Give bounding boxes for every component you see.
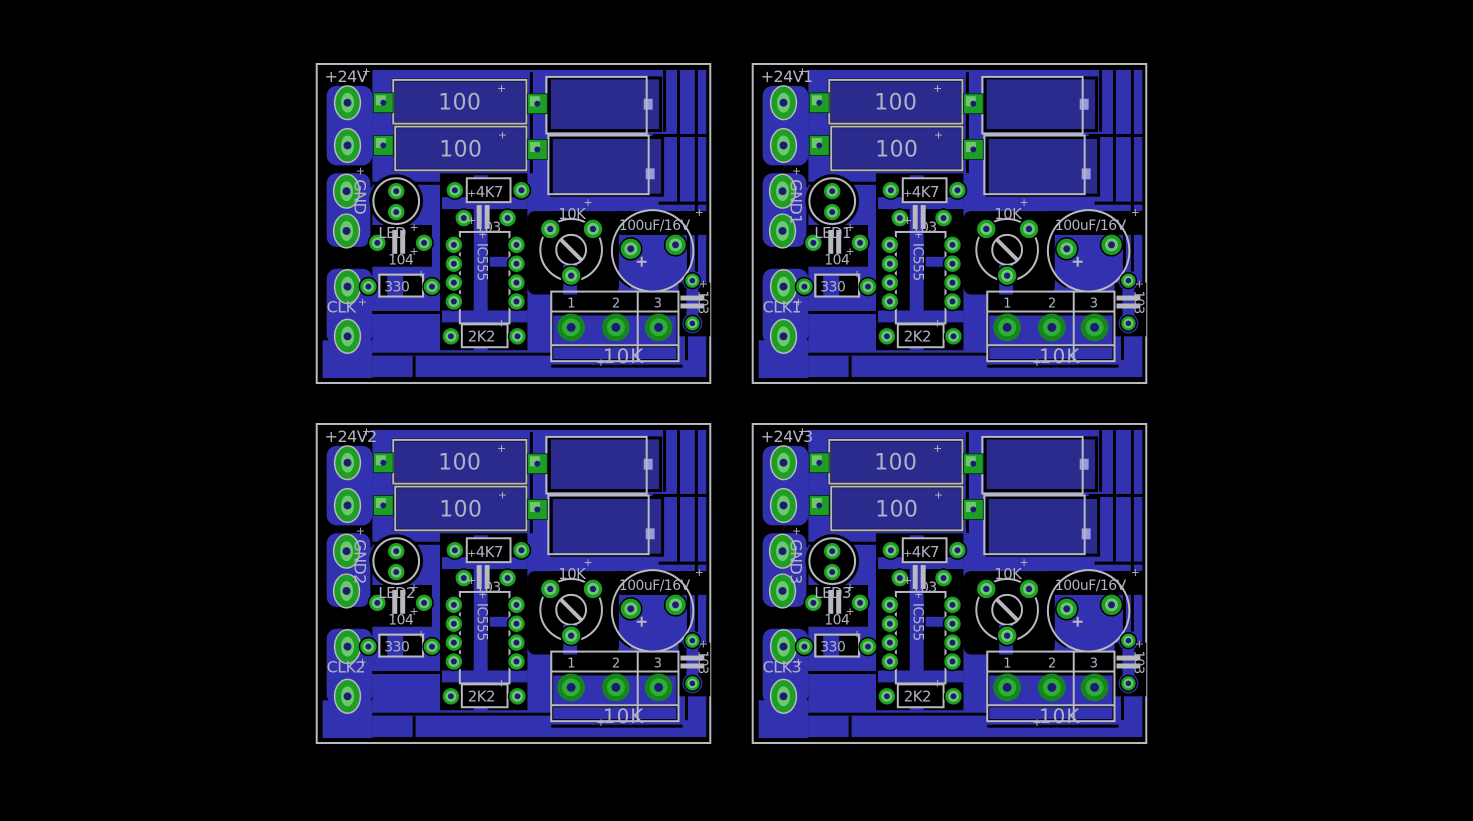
value-cap-electrolytic: 100uF/16V xyxy=(1055,218,1127,234)
pcb-board-3[interactable]: +24V2 GND2 LED2 CLK2 100 100 4K7 103 104… xyxy=(314,422,713,745)
pot-pin-3: 3 xyxy=(1090,296,1098,311)
pot-pin-3: 3 xyxy=(654,656,662,671)
origin-cross-icon: + xyxy=(903,574,912,587)
pad xyxy=(881,634,899,652)
pad xyxy=(373,136,393,156)
origin-cross-icon: + xyxy=(695,566,704,579)
pad xyxy=(945,327,963,345)
value-cap-103-edge: 103 xyxy=(1130,291,1145,314)
pad xyxy=(445,615,463,633)
pot-pin-1: 1 xyxy=(567,656,575,671)
label-gnd: GND xyxy=(350,179,369,214)
pad xyxy=(684,315,700,331)
pad xyxy=(993,673,1021,701)
via-mark xyxy=(1080,99,1089,110)
pad xyxy=(963,500,983,520)
pot-pin-2: 2 xyxy=(1048,656,1056,671)
origin-cross-icon: + xyxy=(362,65,371,78)
pad xyxy=(882,541,900,559)
pad xyxy=(944,653,962,671)
pad xyxy=(809,136,829,156)
pad xyxy=(1056,598,1078,620)
value-resistor-100-top: 100 xyxy=(438,451,481,476)
relay-bottom-body xyxy=(987,138,1098,196)
pad xyxy=(881,255,899,273)
origin-cross-icon: + xyxy=(467,574,476,587)
pad xyxy=(859,638,877,656)
relay-bottom-body xyxy=(551,138,662,196)
value-ic555: IC555 xyxy=(474,243,490,281)
label-gnd: GND3 xyxy=(786,539,805,584)
via-mark xyxy=(1080,459,1089,470)
value-resistor-100-top: 100 xyxy=(874,91,917,116)
pad xyxy=(1019,579,1039,599)
origin-cross-icon: + xyxy=(699,638,708,651)
value-resistor-330: 330 xyxy=(820,640,845,656)
pad xyxy=(1019,219,1039,239)
value-cap-electrolytic: 100uF/16V xyxy=(619,218,691,234)
pad xyxy=(823,563,841,581)
pad xyxy=(445,274,463,292)
pad xyxy=(881,615,899,633)
origin-cross-icon: + xyxy=(467,187,476,200)
pad xyxy=(508,596,526,614)
pad xyxy=(373,453,393,473)
origin-cross-icon: + xyxy=(467,214,476,227)
pad xyxy=(387,203,405,221)
value-cap-103-edge: 103 xyxy=(1130,651,1145,674)
pad xyxy=(446,181,464,199)
pad xyxy=(335,319,361,353)
pad xyxy=(508,236,526,254)
value-pot-10k: 10K xyxy=(1039,345,1080,368)
pad xyxy=(963,140,983,160)
origin-cross-icon: + xyxy=(846,245,855,258)
origin-cross-icon: + xyxy=(478,228,487,241)
pcb-board-2[interactable]: +24V1 GND1 LED1 CLK1 100 100 4K7 103 104… xyxy=(750,62,1149,385)
pad xyxy=(508,615,526,633)
pad xyxy=(335,679,361,713)
pad xyxy=(387,542,405,560)
pad xyxy=(881,293,899,311)
pad xyxy=(446,541,464,559)
pad xyxy=(665,594,687,616)
pad xyxy=(620,598,642,620)
pcb-board-1[interactable]: +24V GND LED CLK 100 100 4K7 103 104 330… xyxy=(314,62,713,385)
pad xyxy=(949,541,967,559)
origin-cross-icon: + xyxy=(416,268,425,281)
pad xyxy=(335,129,361,163)
value-resistor-330: 330 xyxy=(820,280,845,296)
label-led: LED xyxy=(378,224,406,242)
origin-cross-icon: + xyxy=(498,489,507,502)
origin-cross-icon: + xyxy=(497,442,506,455)
origin-cross-icon: + xyxy=(583,196,592,209)
pad xyxy=(665,234,687,256)
pad xyxy=(602,313,630,341)
pad xyxy=(445,255,463,273)
pad xyxy=(527,500,547,520)
via-mark xyxy=(646,168,655,179)
pad xyxy=(1081,673,1109,701)
pad xyxy=(878,687,896,705)
pad xyxy=(499,569,517,587)
pad xyxy=(527,454,547,474)
value-resistor-100-bottom: 100 xyxy=(875,497,918,522)
origin-cross-icon: + xyxy=(410,221,419,234)
pad xyxy=(809,453,829,473)
origin-cross-icon: + xyxy=(934,129,943,142)
origin-cross-icon: + xyxy=(1131,206,1140,219)
value-cap-electrolytic: 100uF/16V xyxy=(1055,578,1127,594)
pad xyxy=(387,182,405,200)
origin-cross-icon: + xyxy=(846,581,855,594)
pad xyxy=(513,181,531,199)
pad xyxy=(993,313,1021,341)
relay-bottom-body xyxy=(551,498,662,556)
pad xyxy=(335,446,361,480)
value-resistor-100-bottom: 100 xyxy=(439,137,482,162)
origin-cross-icon: + xyxy=(903,214,912,227)
pad xyxy=(944,615,962,633)
pad xyxy=(373,93,393,113)
origin-cross-icon: + xyxy=(497,82,506,95)
pad xyxy=(997,266,1017,286)
pad xyxy=(359,278,377,296)
pad xyxy=(795,278,813,296)
pad xyxy=(442,327,460,345)
pad xyxy=(557,313,585,341)
pad xyxy=(508,653,526,671)
value-ic555: IC555 xyxy=(474,603,490,641)
origin-cross-icon: + xyxy=(798,425,807,438)
pad xyxy=(771,679,797,713)
pcb-board-4[interactable]: +24V3 GND3 LED3 CLK3 100 100 4K7 103 104… xyxy=(750,422,1149,745)
pad xyxy=(944,596,962,614)
value-resistor-100-bottom: 100 xyxy=(875,137,918,162)
pad xyxy=(509,327,527,345)
pad xyxy=(823,542,841,560)
pad xyxy=(1101,594,1123,616)
pad xyxy=(935,209,953,227)
pot-pin-2: 2 xyxy=(612,296,620,311)
pad xyxy=(1120,675,1136,691)
value-resistor-100-top: 100 xyxy=(874,451,917,476)
pcb-layout-canvas: +24V GND LED CLK 100 100 4K7 103 104 330… xyxy=(0,0,1473,821)
origin-cross-icon: + xyxy=(792,524,801,537)
origin-cross-icon: + xyxy=(358,655,367,668)
pad xyxy=(771,489,797,523)
via-mark xyxy=(644,99,653,110)
pad xyxy=(1081,313,1109,341)
value-ic555: IC555 xyxy=(910,603,926,641)
origin-cross-icon: + xyxy=(933,442,942,455)
pad xyxy=(944,274,962,292)
origin-cross-icon: + xyxy=(358,295,367,308)
pad xyxy=(540,219,560,239)
pad xyxy=(423,638,441,656)
origin-cross-icon: + xyxy=(1131,566,1140,579)
pad xyxy=(527,140,547,160)
pad xyxy=(583,219,603,239)
origin-cross-icon: + xyxy=(933,82,942,95)
pad xyxy=(335,489,361,523)
origin-cross-icon: + xyxy=(903,547,912,560)
origin-cross-icon: + xyxy=(695,206,704,219)
pad xyxy=(997,626,1017,646)
value-resistor-4k7: 4K7 xyxy=(912,543,939,561)
pad xyxy=(859,278,877,296)
pad xyxy=(499,209,517,227)
pad xyxy=(527,94,547,114)
origin-cross-icon: + xyxy=(362,425,371,438)
pad xyxy=(540,579,560,599)
via-mark xyxy=(646,528,655,539)
value-resistor-330: 330 xyxy=(384,640,409,656)
origin-cross-icon: + xyxy=(596,356,605,369)
origin-cross-icon: + xyxy=(914,228,923,241)
pad xyxy=(508,274,526,292)
origin-cross-icon: + xyxy=(1135,638,1144,651)
origin-cross-icon: + xyxy=(583,556,592,569)
pad xyxy=(823,182,841,200)
origin-cross-icon: + xyxy=(478,588,487,601)
pad xyxy=(1120,315,1136,331)
pad xyxy=(442,687,460,705)
label-clk: CLK xyxy=(327,297,357,316)
origin-cross-icon: + xyxy=(1019,556,1028,569)
pad xyxy=(684,675,700,691)
origin-cross-icon: + xyxy=(1032,716,1041,729)
pad xyxy=(944,634,962,652)
value-resistor-330: 330 xyxy=(384,280,409,296)
label-gnd: GND1 xyxy=(786,179,805,224)
pad xyxy=(881,596,899,614)
origin-cross-icon: + xyxy=(852,268,861,281)
value-resistor-4k7: 4K7 xyxy=(476,183,503,201)
value-resistor-2k2: 2K2 xyxy=(904,327,931,345)
pad xyxy=(949,181,967,199)
value-cap-103-edge: 103 xyxy=(694,291,709,314)
pad xyxy=(963,454,983,474)
via-mark xyxy=(1082,528,1091,539)
pad xyxy=(1101,234,1123,256)
pad xyxy=(508,293,526,311)
pot-pin-2: 2 xyxy=(612,656,620,671)
pad xyxy=(976,579,996,599)
pad xyxy=(771,129,797,163)
pad xyxy=(557,673,585,701)
pad xyxy=(771,86,797,120)
pad xyxy=(771,446,797,480)
pot-pin-1: 1 xyxy=(567,296,575,311)
origin-cross-icon: + xyxy=(498,129,507,142)
value-resistor-4k7: 4K7 xyxy=(476,543,503,561)
pad xyxy=(509,687,527,705)
value-pot-10k: 10K xyxy=(603,705,644,728)
via-mark xyxy=(1082,168,1091,179)
pad xyxy=(963,94,983,114)
pad xyxy=(508,255,526,273)
pad xyxy=(935,569,953,587)
origin-cross-icon: + xyxy=(914,588,923,601)
pad xyxy=(508,634,526,652)
origin-cross-icon: + xyxy=(934,489,943,502)
pad xyxy=(334,214,360,248)
origin-cross-icon: + xyxy=(497,316,506,329)
value-resistor-100-bottom: 100 xyxy=(439,497,482,522)
origin-cross-icon: + xyxy=(410,245,419,258)
pad xyxy=(1038,313,1066,341)
origin-cross-icon: + xyxy=(497,676,506,689)
pad xyxy=(1056,238,1078,260)
pad xyxy=(976,219,996,239)
origin-cross-icon: + xyxy=(410,605,419,618)
value-resistor-2k2: 2K2 xyxy=(468,687,495,705)
origin-cross-icon: + xyxy=(794,655,803,668)
value-resistor-2k2: 2K2 xyxy=(468,327,495,345)
pad xyxy=(373,496,393,516)
relay-bottom-body xyxy=(987,498,1098,556)
pad xyxy=(878,327,896,345)
pad xyxy=(944,236,962,254)
value-cap-103-edge: 103 xyxy=(694,651,709,674)
pad xyxy=(809,496,829,516)
pad xyxy=(945,687,963,705)
value-pot-10k: 10K xyxy=(1039,705,1080,728)
origin-cross-icon: + xyxy=(416,628,425,641)
pad xyxy=(445,293,463,311)
value-ic555: IC555 xyxy=(910,243,926,281)
via-mark xyxy=(644,459,653,470)
pad xyxy=(881,653,899,671)
pad xyxy=(387,563,405,581)
origin-cross-icon: + xyxy=(467,547,476,560)
pad xyxy=(771,319,797,353)
origin-cross-icon: + xyxy=(846,605,855,618)
pad xyxy=(445,596,463,614)
pad xyxy=(944,293,962,311)
origin-cross-icon: + xyxy=(410,581,419,594)
origin-cross-icon: + xyxy=(852,628,861,641)
origin-cross-icon: + xyxy=(356,164,365,177)
pad xyxy=(645,673,673,701)
pad xyxy=(583,579,603,599)
origin-cross-icon: + xyxy=(792,164,801,177)
pot-pin-3: 3 xyxy=(1090,656,1098,671)
pad xyxy=(423,278,441,296)
pad xyxy=(620,238,642,260)
origin-cross-icon: + xyxy=(798,65,807,78)
origin-cross-icon: + xyxy=(356,524,365,537)
pad xyxy=(335,86,361,120)
pad xyxy=(445,236,463,254)
pot-pin-2: 2 xyxy=(1048,296,1056,311)
origin-cross-icon: + xyxy=(699,278,708,291)
pad xyxy=(359,638,377,656)
pad xyxy=(602,673,630,701)
pad xyxy=(795,638,813,656)
pad xyxy=(882,181,900,199)
value-resistor-2k2: 2K2 xyxy=(904,687,931,705)
pad xyxy=(809,93,829,113)
pad xyxy=(881,236,899,254)
origin-cross-icon: + xyxy=(1135,278,1144,291)
origin-cross-icon: + xyxy=(903,187,912,200)
value-cap-electrolytic: 100uF/16V xyxy=(619,578,691,594)
value-resistor-4k7: 4K7 xyxy=(912,183,939,201)
pot-pin-3: 3 xyxy=(654,296,662,311)
pad xyxy=(645,313,673,341)
pad xyxy=(881,274,899,292)
pot-pin-1: 1 xyxy=(1003,656,1011,671)
origin-cross-icon: + xyxy=(1032,356,1041,369)
origin-cross-icon: + xyxy=(1019,196,1028,209)
pot-pin-1: 1 xyxy=(1003,296,1011,311)
pad xyxy=(1038,673,1066,701)
pad xyxy=(944,255,962,273)
pad xyxy=(513,541,531,559)
pad xyxy=(823,203,841,221)
label-gnd: GND2 xyxy=(350,539,369,584)
origin-cross-icon: + xyxy=(933,316,942,329)
origin-cross-icon: + xyxy=(794,295,803,308)
pad xyxy=(445,634,463,652)
pad xyxy=(561,266,581,286)
origin-cross-icon: + xyxy=(846,221,855,234)
value-pot-10k: 10K xyxy=(603,345,644,368)
value-resistor-100-top: 100 xyxy=(438,91,481,116)
origin-cross-icon: + xyxy=(596,716,605,729)
pad xyxy=(445,653,463,671)
origin-cross-icon: + xyxy=(933,676,942,689)
pad xyxy=(561,626,581,646)
